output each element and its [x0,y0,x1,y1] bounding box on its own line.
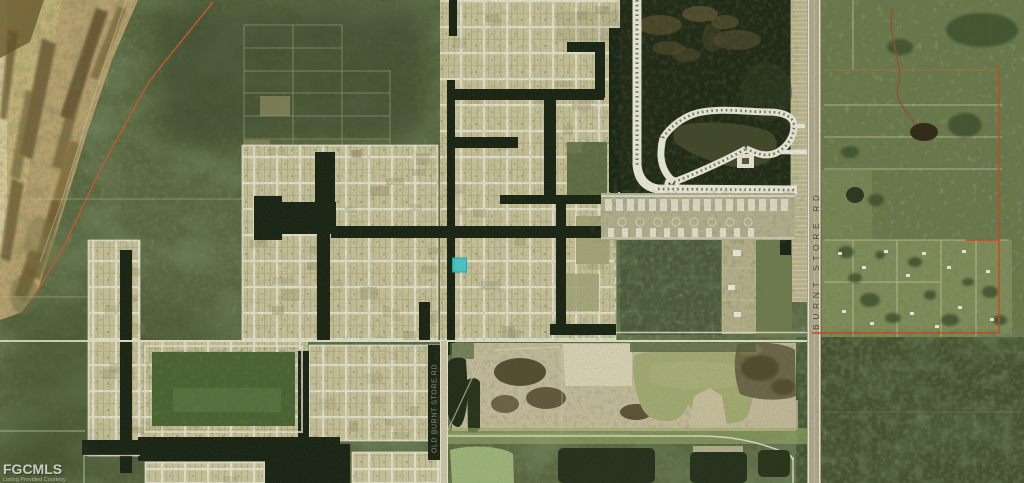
svg-text:FGCMLS: FGCMLS [3,461,62,477]
svg-text:Listing Provided Courtesy: Listing Provided Courtesy [3,477,66,483]
